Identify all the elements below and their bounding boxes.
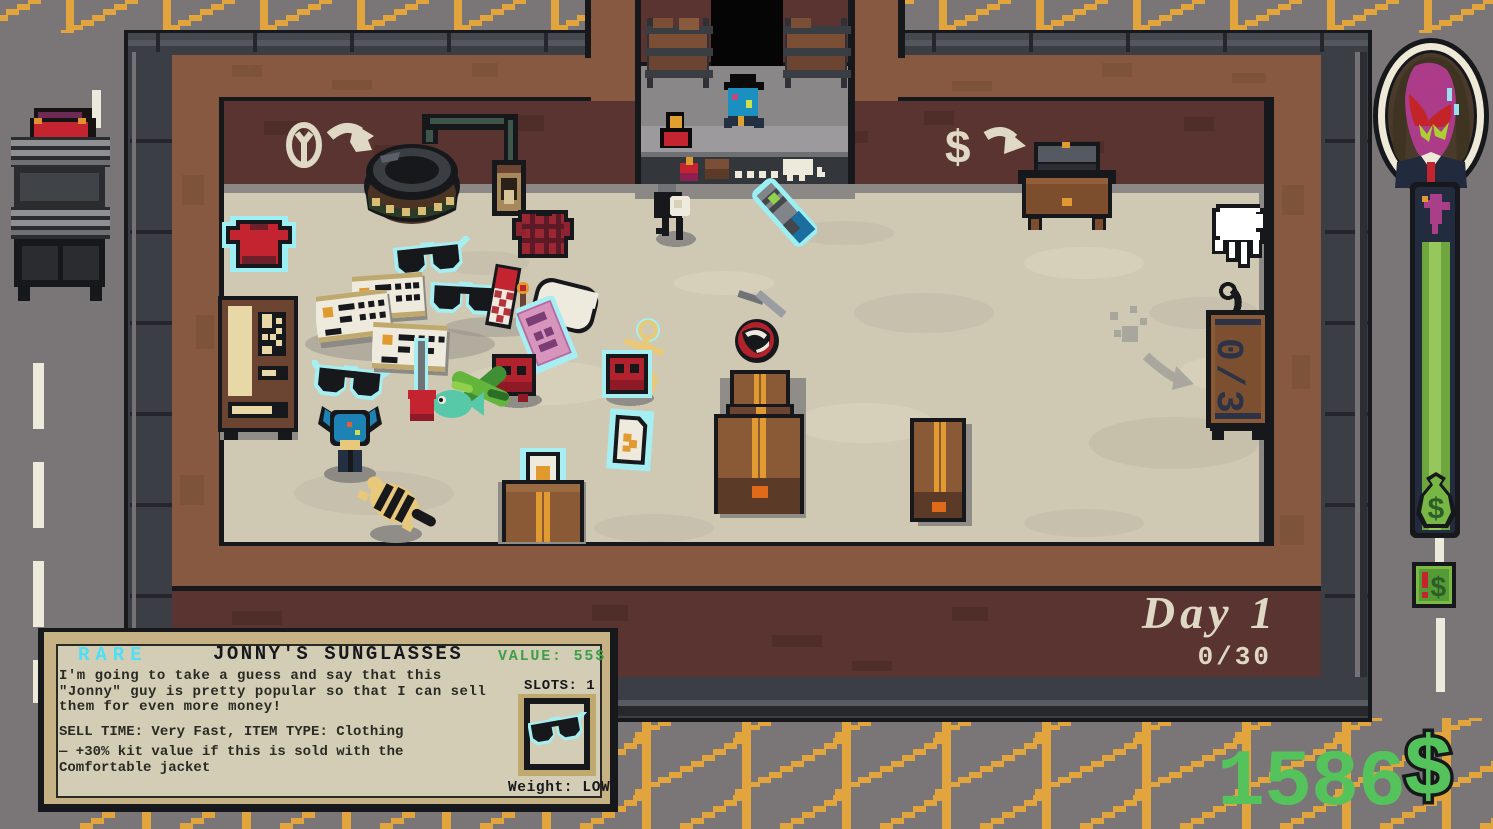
- svg-text:$: $: [1427, 494, 1445, 528]
- svg-text:$: $: [944, 124, 972, 176]
- svg-text:/: /: [1206, 364, 1249, 387]
- svg-text:0: 0: [1206, 338, 1249, 361]
- svg-text:$: $: [1430, 574, 1447, 605]
- svg-text:3: 3: [1206, 390, 1249, 413]
- svg-text:$: $: [1403, 728, 1453, 812]
